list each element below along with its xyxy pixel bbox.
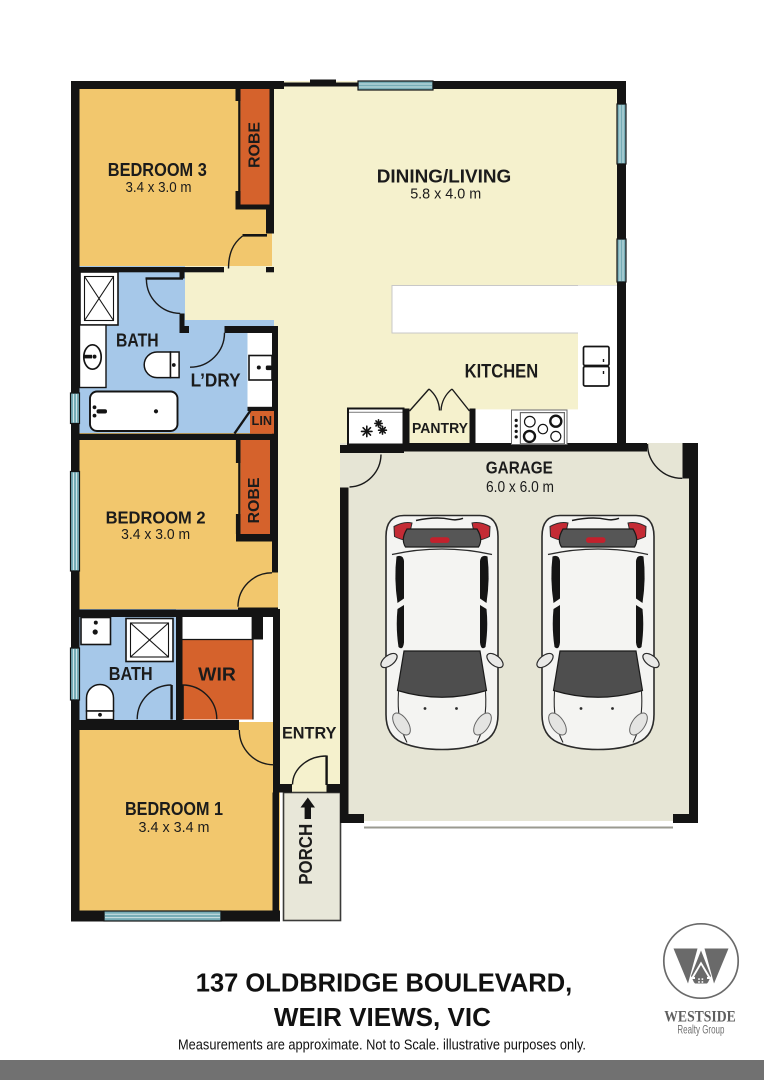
svg-text:BEDROOM 1: BEDROOM 1 <box>125 799 223 819</box>
svg-text:ROBE: ROBE <box>246 122 263 168</box>
svg-text:5.8 x 4.0 m: 5.8 x 4.0 m <box>410 186 481 203</box>
svg-text:KITCHEN: KITCHEN <box>465 362 539 383</box>
svg-text:WEIR VIEWS, VIC: WEIR VIEWS, VIC <box>274 1004 491 1032</box>
svg-text:Measurements are approximate.: Measurements are approximate. Not to Sca… <box>178 1038 586 1054</box>
svg-text:Realty Group: Realty Group <box>677 1025 724 1037</box>
svg-text:L’DRY: L’DRY <box>191 370 242 391</box>
svg-text:BEDROOM 3: BEDROOM 3 <box>108 159 207 180</box>
svg-text:PANTRY: PANTRY <box>412 421 468 437</box>
svg-text:3.4 x 3.4 m: 3.4 x 3.4 m <box>139 819 210 836</box>
svg-text:WIR: WIR <box>198 664 236 685</box>
svg-text:BEDROOM 2: BEDROOM 2 <box>106 507 206 527</box>
svg-text:6.0 x 6.0 m: 6.0 x 6.0 m <box>486 479 554 496</box>
svg-text:ENTRY: ENTRY <box>282 723 337 742</box>
svg-text:LIN: LIN <box>252 414 273 428</box>
svg-text:WESTSIDE: WESTSIDE <box>664 1008 736 1025</box>
svg-text:137 OLDBRIDGE BOULEVARD,: 137 OLDBRIDGE BOULEVARD, <box>196 970 572 998</box>
svg-text:DINING/LIVING: DINING/LIVING <box>377 165 512 186</box>
svg-text:BATH: BATH <box>109 663 153 684</box>
svg-text:GARAGE: GARAGE <box>486 458 553 478</box>
svg-text:ROBE: ROBE <box>246 477 263 523</box>
svg-text:PORCH: PORCH <box>296 824 316 885</box>
svg-text:3.4 x 3.0 m: 3.4 x 3.0 m <box>126 179 192 196</box>
svg-text:3.4 x 3.0 m: 3.4 x 3.0 m <box>121 526 190 543</box>
svg-text:BATH: BATH <box>116 330 159 351</box>
